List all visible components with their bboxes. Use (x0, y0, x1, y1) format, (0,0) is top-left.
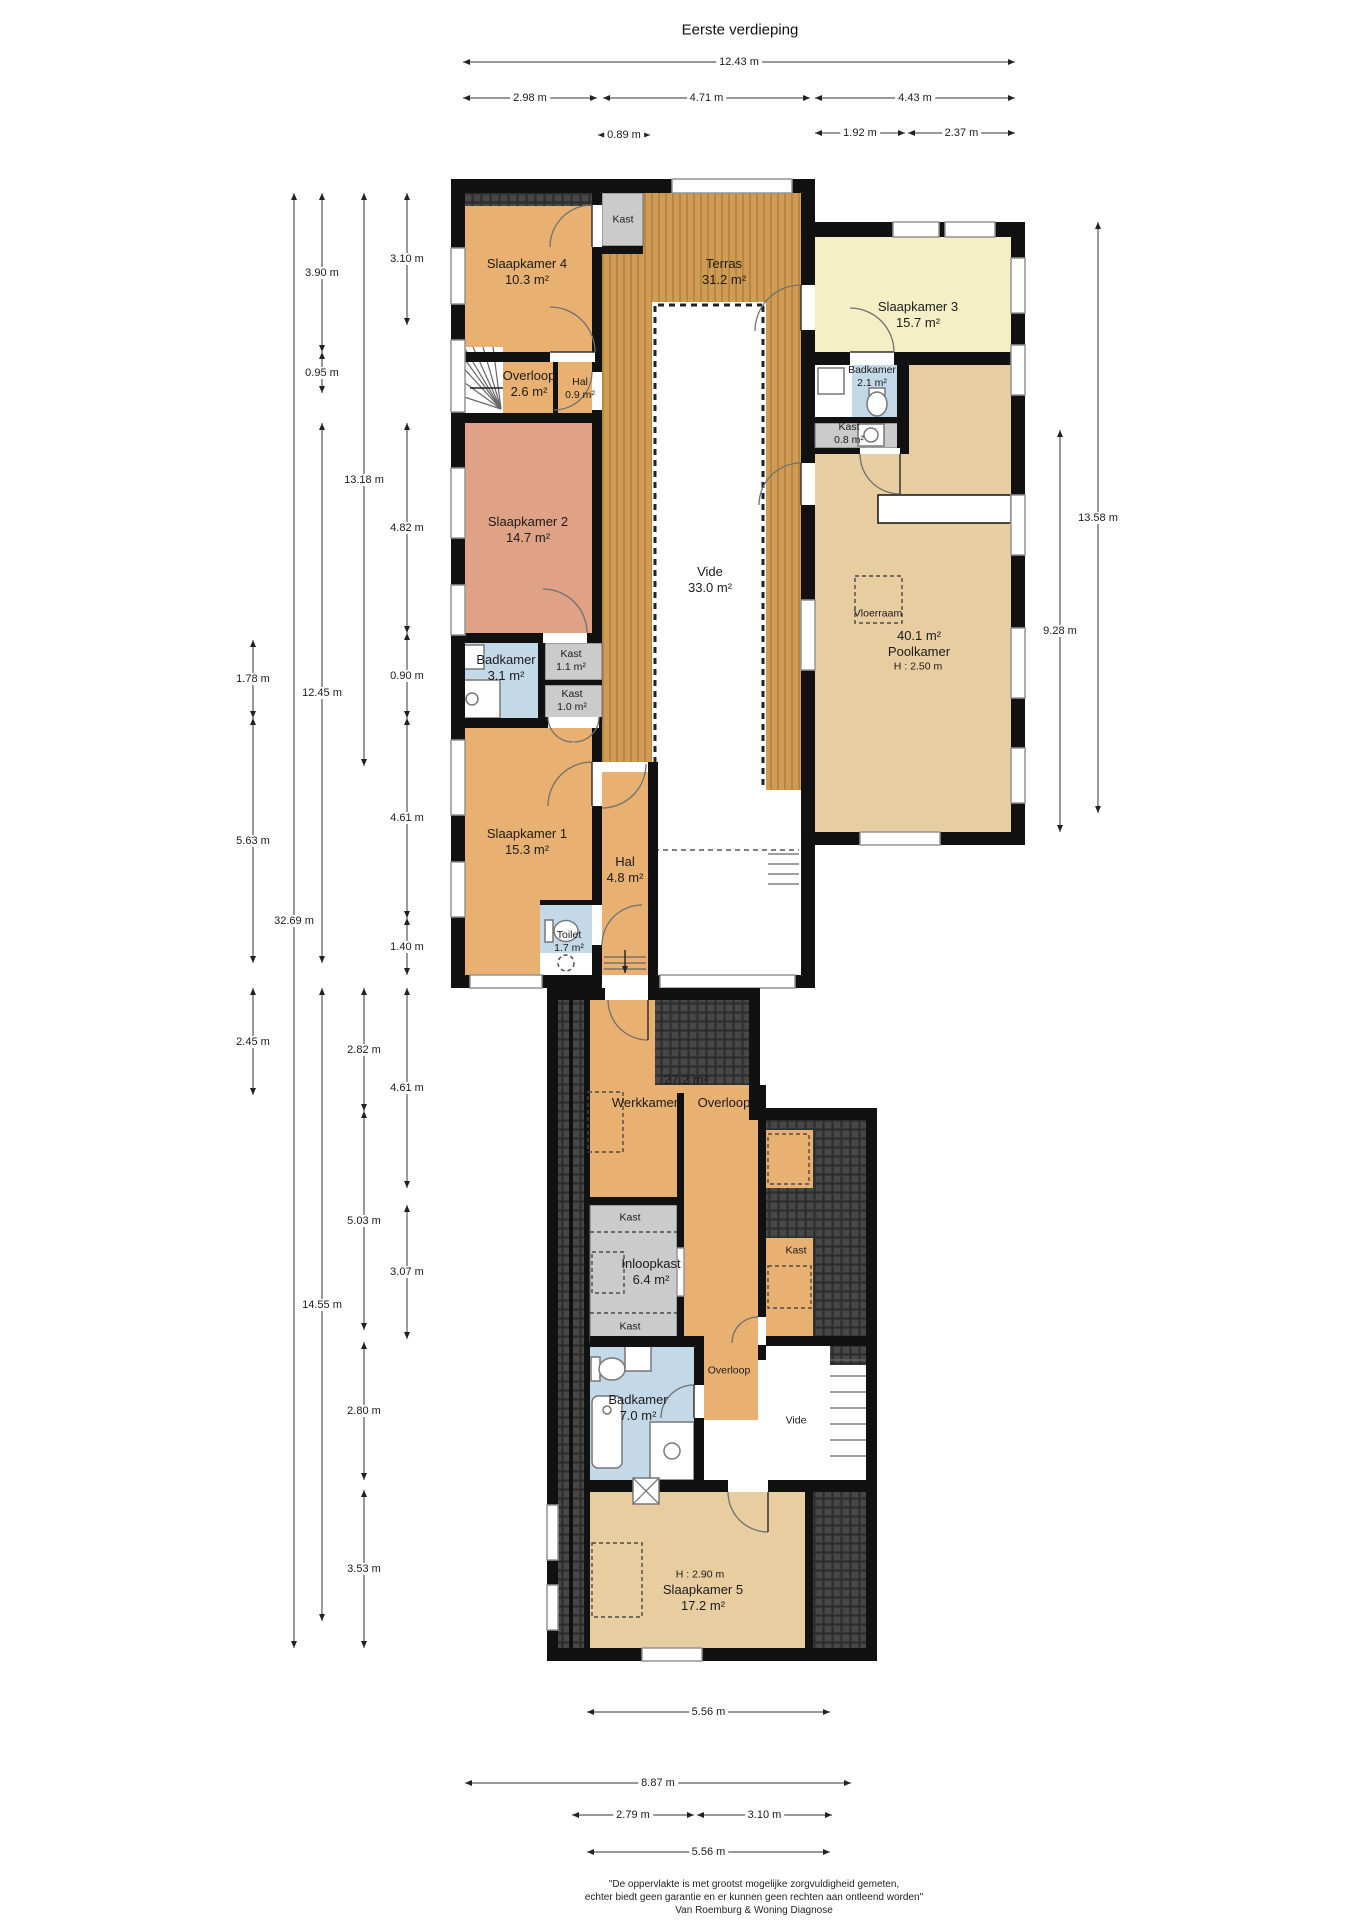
dimension-label: 4.43 m (895, 92, 935, 104)
counter (878, 495, 1011, 523)
room-label: 40.1 m²Poolkamer (888, 628, 950, 660)
dimension-label: 32.69 m (271, 915, 317, 927)
dimension-label: 4.82 m (387, 522, 427, 534)
room-label: Kast (619, 1321, 640, 1334)
toilet-tank-icon (545, 920, 553, 942)
room-overloop-lower (684, 1197, 758, 1336)
sink-icon-lower (625, 1345, 651, 1371)
footer-company: Van Roemburg & Woning Diagnose (374, 1904, 1134, 1917)
dimension-label: 0.95 m (302, 367, 342, 379)
footer-line1: "De oppervlakte is met grootst mogelijke… (374, 1878, 1134, 1891)
room-label: Badkamer2.1 m² (848, 364, 896, 390)
dimension-label: 2.98 m (510, 92, 550, 104)
dimension-label: 4.71 m (687, 92, 727, 104)
floorplan-page: Eerste verdieping (0, 0, 1358, 1920)
dimension-label: 5.56 m (689, 1846, 729, 1858)
dimension-label: 3.10 m (387, 253, 427, 265)
dimension-label: 14.55 m (299, 1299, 345, 1311)
dimension-label: 3.90 m (302, 267, 342, 279)
dimension-label: 3.10 m (745, 1809, 785, 1821)
shower-drain-icon (466, 693, 478, 705)
nook-fontein (540, 953, 592, 975)
dimension-label: 2.45 m (233, 1036, 273, 1048)
room-label: Kast0.8 m² (834, 421, 864, 447)
room-label: Hal0.9 m² (565, 376, 595, 402)
shower-head-icon (664, 1443, 680, 1459)
toilet-icon (867, 392, 887, 416)
footer-disclaimer: "De oppervlakte is met grootst mogelijke… (374, 1878, 1134, 1917)
room-label: Overloop (708, 1365, 751, 1378)
room-label: Inloopkast6.4 m² (621, 1256, 680, 1288)
room-label: Kast (619, 1212, 640, 1225)
stairs-vide (830, 1360, 866, 1456)
room-label: 27.2 m² (664, 1072, 708, 1088)
room-label: Kast (785, 1245, 806, 1258)
dimension-label: 12.43 m (716, 56, 762, 68)
room-label: Overloop2.6 m² (503, 368, 556, 400)
room-label: Slaapkamer 214.7 m² (488, 514, 568, 546)
dimension-label: 4.61 m (387, 1082, 427, 1094)
room-slaapkamer3 (815, 237, 1011, 352)
dimension-label: 5.63 m (233, 835, 273, 847)
dimension-label: 13.18 m (341, 474, 387, 486)
dimension-label: 0.90 m (387, 670, 427, 682)
room-label: Slaapkamer 517.2 m² (663, 1582, 743, 1614)
room-label: Slaapkamer 410.3 m² (487, 256, 567, 288)
toilet-icon-lower (599, 1358, 625, 1380)
dimension-label: 5.03 m (344, 1215, 384, 1227)
room-label: H : 2.50 m (894, 661, 942, 674)
roof-strip (465, 193, 602, 206)
dimension-label: 2.37 m (942, 127, 982, 139)
dimension-label: 2.79 m (613, 1809, 653, 1821)
dimension-label: 2.82 m (344, 1044, 384, 1056)
dimension-label: 8.87 m (638, 1777, 678, 1789)
floorplan-canvas (0, 0, 1358, 1920)
lower-building (547, 988, 877, 1661)
room-label: Terras31.2 m² (702, 256, 746, 288)
room-label: Vide33.0 m² (688, 564, 732, 596)
room-label: Slaapkamer 115.3 m² (487, 826, 567, 858)
room-label: Slaapkamer 315.7 m² (878, 299, 958, 331)
footer-line2: echter biedt geen garantie en er kunnen … (374, 1891, 1134, 1904)
vide-extension (652, 850, 801, 975)
room-label: Werkkamer (612, 1095, 678, 1111)
room-label: Kast1.1 m² (556, 648, 586, 674)
room-label: H : 2.90 m (676, 1569, 724, 1582)
room-label: Vloerraam (854, 608, 902, 621)
room-label: Kast1.0 m² (557, 688, 587, 714)
dimension-label: 3.53 m (344, 1563, 384, 1575)
dimension-label: 1.92 m (840, 127, 880, 139)
dimension-label: 3.07 m (387, 1266, 427, 1278)
dimension-label: 2.80 m (344, 1405, 384, 1417)
dimension-label: 12.45 m (299, 687, 345, 699)
room-label: Toilet1.7 m² (554, 929, 584, 955)
room-label: Vide (786, 1415, 807, 1428)
room-label: Kast (612, 214, 633, 227)
dormer-window (893, 222, 939, 237)
room-label: Hal4.8 m² (607, 854, 644, 886)
dimension-label: 0.89 m (604, 129, 644, 141)
room-label: Overloop (698, 1095, 751, 1111)
dimension-label: 9.28 m (1040, 625, 1080, 637)
dimension-label: 1.78 m (233, 673, 273, 685)
dimension-label: 1.40 m (387, 941, 427, 953)
room-label: Badkamer7.0 m² (608, 1392, 667, 1424)
room-vide-lower (766, 1346, 830, 1476)
dimension-label: 13.58 m (1075, 512, 1121, 524)
sink-icon (818, 368, 844, 394)
room-label: Badkamer3.1 m² (476, 652, 535, 684)
dimension-label: 4.61 m (387, 812, 427, 824)
dimension-label: 5.56 m (689, 1706, 729, 1718)
